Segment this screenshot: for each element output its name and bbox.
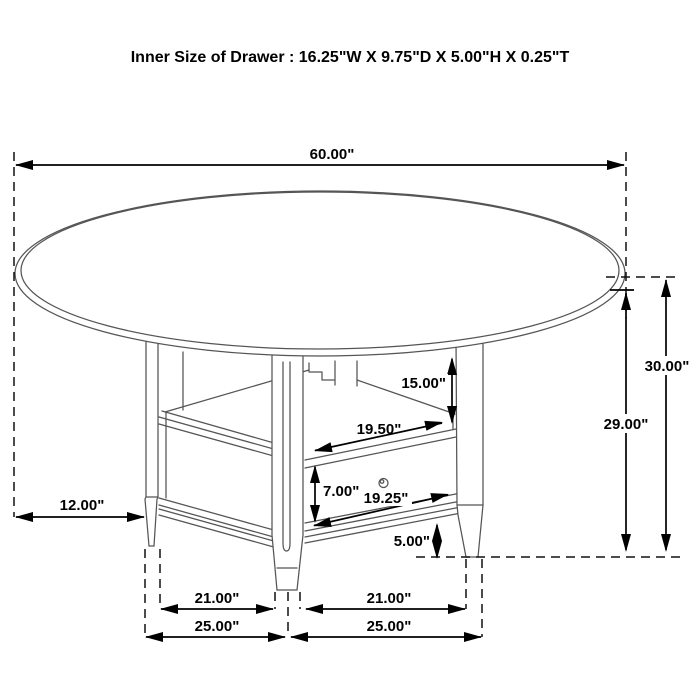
dim-tabletop-diameter: 60.00" [15, 146, 625, 170]
dim-top-to-shelf-label: 15.00" [401, 375, 446, 392]
arrowhead-right [448, 604, 466, 614]
dim-inner-span-right-label: 21.00" [367, 590, 412, 607]
base-interior [162, 352, 455, 498]
dim-top-overhang-label: 12.00" [60, 497, 105, 514]
dim-inner-span-left: 21.00" [160, 590, 274, 614]
diagram-canvas: 60.00" 12.00" 30.00" 29.00" [0, 0, 700, 700]
dim-inner-span-right: 21.00" [305, 590, 466, 614]
dim-underside-height: 29.00" [599, 292, 653, 552]
dim-drawer-height: 7.00" [310, 465, 364, 523]
dim-top-to-shelf: 15.00" [398, 357, 457, 424]
shelf-band-left-face [159, 417, 288, 460]
arrowhead-left [160, 604, 178, 614]
dim-drawer-height-label: 7.00" [323, 483, 359, 500]
dim-drawer-width-label: 19.25" [364, 490, 409, 507]
table-drawing [15, 191, 625, 590]
arrowhead-bottom [447, 406, 457, 424]
dim-underside-height-label: 29.00" [604, 416, 649, 433]
arrowhead-left [290, 632, 308, 642]
arrowhead-top [621, 292, 631, 310]
arrowhead-left [313, 442, 333, 456]
dim-outer-span-right: 25.00" [290, 618, 482, 642]
furniture-dimension-diagram: 60.00" 12.00" 30.00" 29.00" [0, 0, 700, 700]
dim-bottom-clearance: 5.00" [389, 523, 442, 559]
arrowhead-right [464, 632, 482, 642]
right-leg-extensions [466, 559, 482, 637]
dim-outer-span-left: 25.00" [145, 618, 286, 642]
dim-overall-height-label: 30.00" [645, 358, 690, 375]
tabletop [15, 191, 625, 356]
dim-outer-span-right-label: 25.00" [367, 618, 412, 635]
arrowhead-right [607, 160, 625, 170]
lower-band1-left [159, 498, 288, 541]
arrowhead-right [127, 512, 145, 522]
arrowhead-left [145, 632, 163, 642]
arrowhead-left [15, 512, 33, 522]
arrowhead-top [310, 465, 320, 483]
dim-bottom-clearance-label: 5.00" [394, 533, 430, 550]
dim-inner-span-left-label: 21.00" [195, 590, 240, 607]
arrowhead-left [15, 160, 33, 170]
dim-shelf-opening: 19.50" [313, 417, 444, 456]
drawer-knob-detail [380, 480, 384, 484]
dim-shelf-opening-label: 19.50" [357, 421, 402, 438]
arrowhead-top [447, 357, 457, 375]
arrowhead-right [268, 632, 286, 642]
dim-outer-span-left-label: 25.00" [195, 618, 240, 635]
arrowhead-right [256, 604, 274, 614]
right-leg [456, 338, 483, 557]
shelf-back-edge [162, 411, 288, 447]
page-title: Inner Size of Drawer : 16.25"W X 9.75"D … [131, 49, 570, 66]
front-leg [272, 350, 303, 590]
arrowhead-left [305, 604, 323, 614]
dim-tabletop-diameter-label: 60.00" [310, 146, 355, 163]
arrowhead-bottom [661, 534, 671, 552]
arrowhead-top [661, 279, 671, 297]
arrowhead-bottom [621, 534, 631, 552]
front-leg-extensions [275, 592, 300, 637]
left-leg-extensions [145, 549, 160, 637]
back-leg [309, 361, 357, 386]
arrowhead-top [432, 523, 442, 541]
dim-top-overhang: 12.00" [15, 497, 145, 522]
middle-shelf [159, 417, 461, 468]
lower-band2-left [159, 509, 288, 551]
left-leg [145, 336, 158, 546]
drawer [379, 479, 388, 488]
